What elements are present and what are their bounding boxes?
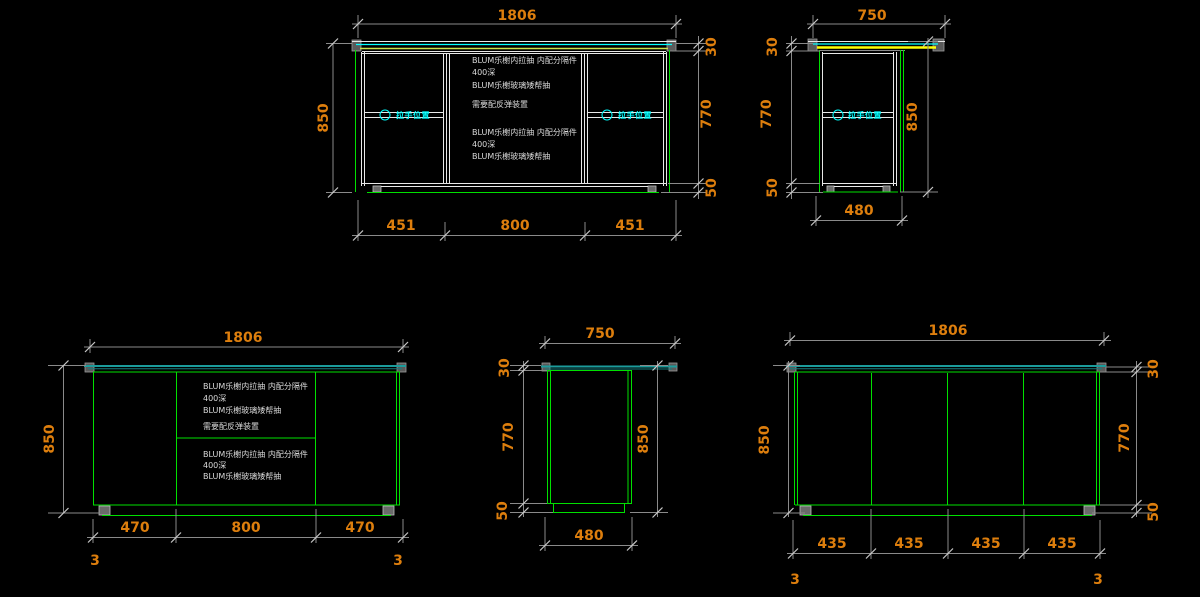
note-line: BLUM乐榭玻璃矮帮抽	[203, 405, 281, 415]
dim-label: 750	[585, 326, 614, 342]
note-line: 需要配反弹装置	[472, 99, 528, 109]
section-mark: 3	[1093, 572, 1103, 588]
section-mark: 3	[790, 572, 800, 588]
countertop-end-cap	[933, 39, 944, 51]
note-line: BLUM乐榭内拉抽 内配分隔件	[203, 449, 308, 459]
dim-label: 30	[765, 37, 781, 57]
dim-heights-left: 30 770 50	[495, 358, 553, 521]
dim-label: 435	[1047, 536, 1076, 552]
handle-label: 拉手位置	[396, 110, 430, 120]
dim-segments-bottom: 435 435 435 435	[787, 509, 1106, 559]
dim-height-right: 850	[900, 37, 938, 199]
dim-depth-bottom: 480	[810, 196, 908, 226]
dim-label: 50	[495, 501, 511, 521]
note-line: BLUM乐榭玻璃矮帮抽	[203, 471, 281, 481]
note-line: 400深	[203, 394, 226, 403]
dim-label: 435	[894, 536, 923, 552]
dim-label: 30	[704, 37, 720, 57]
dim-label: 770	[759, 99, 775, 128]
dim-height-right: 850	[630, 361, 668, 518]
dim-label: 451	[615, 218, 644, 234]
dim-label: 800	[500, 218, 529, 234]
dim-label: 1806	[224, 330, 263, 346]
dim-label: 480	[574, 528, 603, 544]
dim-label: 50	[704, 178, 720, 198]
dim-label: 470	[120, 520, 149, 536]
dim-label: 770	[699, 99, 715, 128]
dim-width-top: 1806	[84, 330, 409, 353]
view-side-plain: 750 30 770 5	[495, 326, 681, 551]
note-line: BLUM乐榭内拉抽 内配分隔件	[203, 381, 308, 391]
cabinet-body: 拉手位置 拉手位置	[356, 50, 670, 193]
cad-drawing-viewport[interactable]: 1806 850	[0, 0, 1200, 597]
handle-label: 拉手位置	[848, 110, 882, 120]
dim-label: 850	[636, 424, 652, 453]
section-mark: 3	[393, 553, 403, 569]
dim-height-left: 850	[316, 39, 352, 198]
dim-label: 30	[1146, 359, 1162, 379]
cabinet-body: 拉手位置	[820, 50, 904, 192]
dim-label: 1806	[929, 323, 968, 339]
plinth-foot	[883, 186, 890, 192]
note-line: BLUM乐榭内拉抽 内配分隔件	[472, 55, 577, 65]
view-side-with-counter: 750 拉手位置	[759, 8, 951, 226]
plinth-foot	[373, 186, 381, 192]
dim-label: 435	[817, 536, 846, 552]
dim-label: 435	[971, 536, 1000, 552]
countertop-end-cap	[85, 363, 94, 372]
countertop-end-cap	[397, 363, 406, 372]
dim-label: 451	[386, 218, 415, 234]
view-front-with-counter: 1806 850	[316, 8, 720, 241]
dim-width-top: 1806	[784, 323, 1111, 346]
dim-heights-left: 30 770 50	[759, 36, 823, 199]
view-back-plain: 1806 850	[757, 323, 1162, 588]
cabinet-body	[93, 372, 400, 516]
annotation-notes: BLUM乐榭内拉抽 内配分隔件 400深 BLUM乐榭玻璃矮帮抽 需要配反弹装置…	[472, 55, 577, 161]
dim-label: 750	[857, 8, 886, 24]
note-line: BLUM乐榭玻璃矮帮抽	[472, 80, 550, 90]
dim-label: 850	[905, 102, 921, 131]
dim-depth-bottom: 480	[539, 517, 638, 551]
plinth-foot	[1084, 506, 1095, 515]
handle-circle-icon	[833, 110, 843, 120]
note-line: 需要配反弹装置	[203, 421, 259, 431]
view-front-plain: 1806 BLUM乐榭内拉抽 内配分隔件 400深 BLUM乐榭玻璃矮帮抽 需要…	[42, 330, 409, 569]
plinth-foot	[648, 186, 656, 192]
dim-label: 1806	[498, 8, 537, 24]
section-mark: 3	[90, 553, 100, 569]
cabinet-body	[547, 371, 632, 513]
handle-circle-icon	[380, 110, 390, 120]
dim-width-top: 750	[807, 8, 951, 38]
dim-label: 770	[1117, 423, 1133, 452]
countertop	[84, 363, 406, 372]
handle-label: 拉手位置	[618, 110, 652, 120]
dim-heights-right: 30 770 50	[1092, 359, 1162, 522]
dim-height-left: 850	[42, 361, 99, 519]
countertop	[352, 40, 676, 52]
cabinet-body	[795, 372, 1101, 516]
dim-label: 850	[757, 425, 773, 454]
dim-label: 30	[497, 358, 513, 378]
note-line: 400深	[472, 68, 495, 77]
dim-width-top: 1806	[352, 8, 682, 38]
dim-label: 770	[501, 422, 517, 451]
plinth-foot	[383, 506, 394, 515]
annotation-notes: BLUM乐榭内拉抽 内配分隔件 400深 BLUM乐榭玻璃矮帮抽 需要配反弹装置…	[203, 381, 308, 481]
plinth-foot	[827, 186, 834, 192]
note-line: BLUM乐榭玻璃矮帮抽	[472, 151, 550, 161]
plinth-foot	[800, 506, 811, 515]
note-line: BLUM乐榭内拉抽 内配分隔件	[472, 127, 577, 137]
dim-label: 480	[844, 203, 873, 219]
countertop	[786, 363, 1106, 372]
countertop-end-cap	[808, 39, 817, 51]
countertop-end-cap	[1097, 363, 1106, 372]
dim-label: 470	[345, 520, 374, 536]
dim-segments-bottom: 451 800 451	[352, 200, 682, 241]
dim-width-top: 750	[539, 326, 681, 349]
dim-label: 850	[316, 103, 332, 132]
plinth-foot	[99, 506, 110, 515]
dim-label: 50	[765, 178, 781, 198]
cad-drawing-canvas[interactable]: 1806 850	[0, 0, 1200, 597]
dim-label: 50	[1146, 502, 1162, 522]
dim-label: 800	[231, 520, 260, 536]
dim-segments-bottom: 470 800 470	[87, 509, 409, 543]
dim-label: 850	[42, 424, 58, 453]
handle-circle-icon	[602, 110, 612, 120]
note-line: 400深	[203, 461, 226, 470]
note-line: 400深	[472, 140, 495, 149]
